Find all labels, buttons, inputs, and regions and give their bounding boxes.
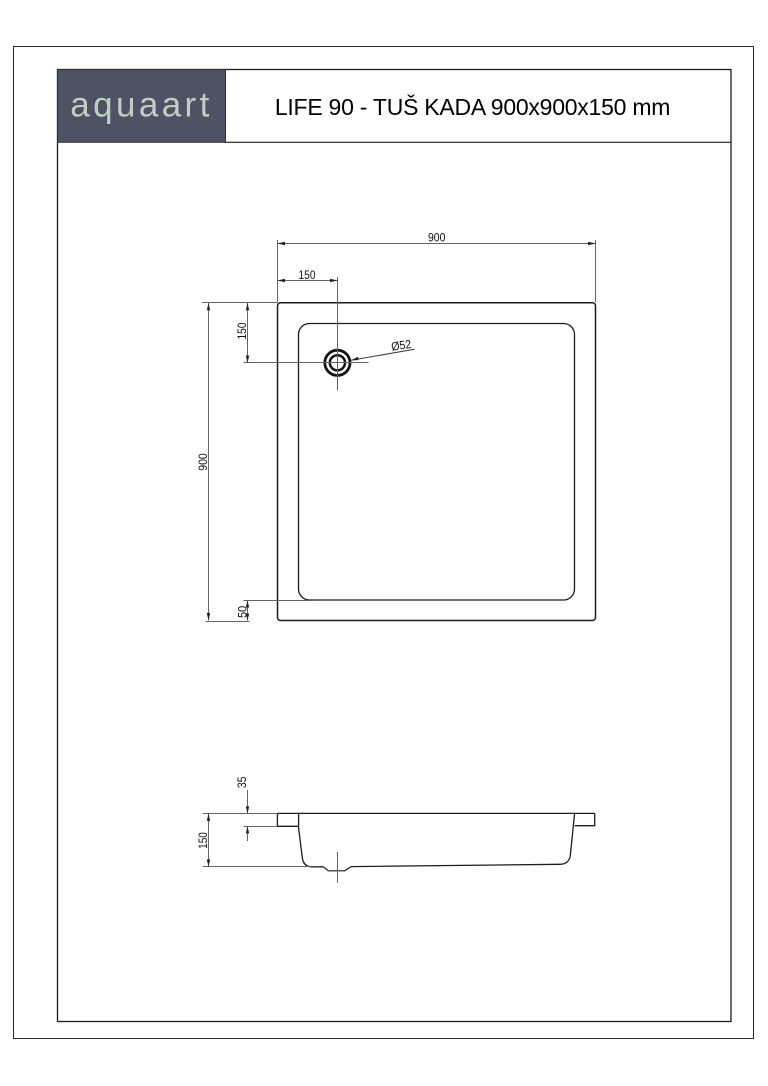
svg-text:900: 900 <box>428 231 446 245</box>
svg-text:aquaart: aquaart <box>70 86 213 125</box>
svg-text:Ø52: Ø52 <box>390 337 412 354</box>
svg-text:35: 35 <box>235 776 249 788</box>
svg-text:900: 900 <box>196 453 210 471</box>
svg-text:LIFE 90 - TUŠ KADA 900x900x150: LIFE 90 - TUŠ KADA 900x900x150 mm <box>275 93 670 120</box>
svg-text:150: 150 <box>196 832 210 849</box>
svg-text:150: 150 <box>299 268 316 282</box>
svg-text:150: 150 <box>235 322 249 339</box>
svg-text:50: 50 <box>236 606 250 618</box>
